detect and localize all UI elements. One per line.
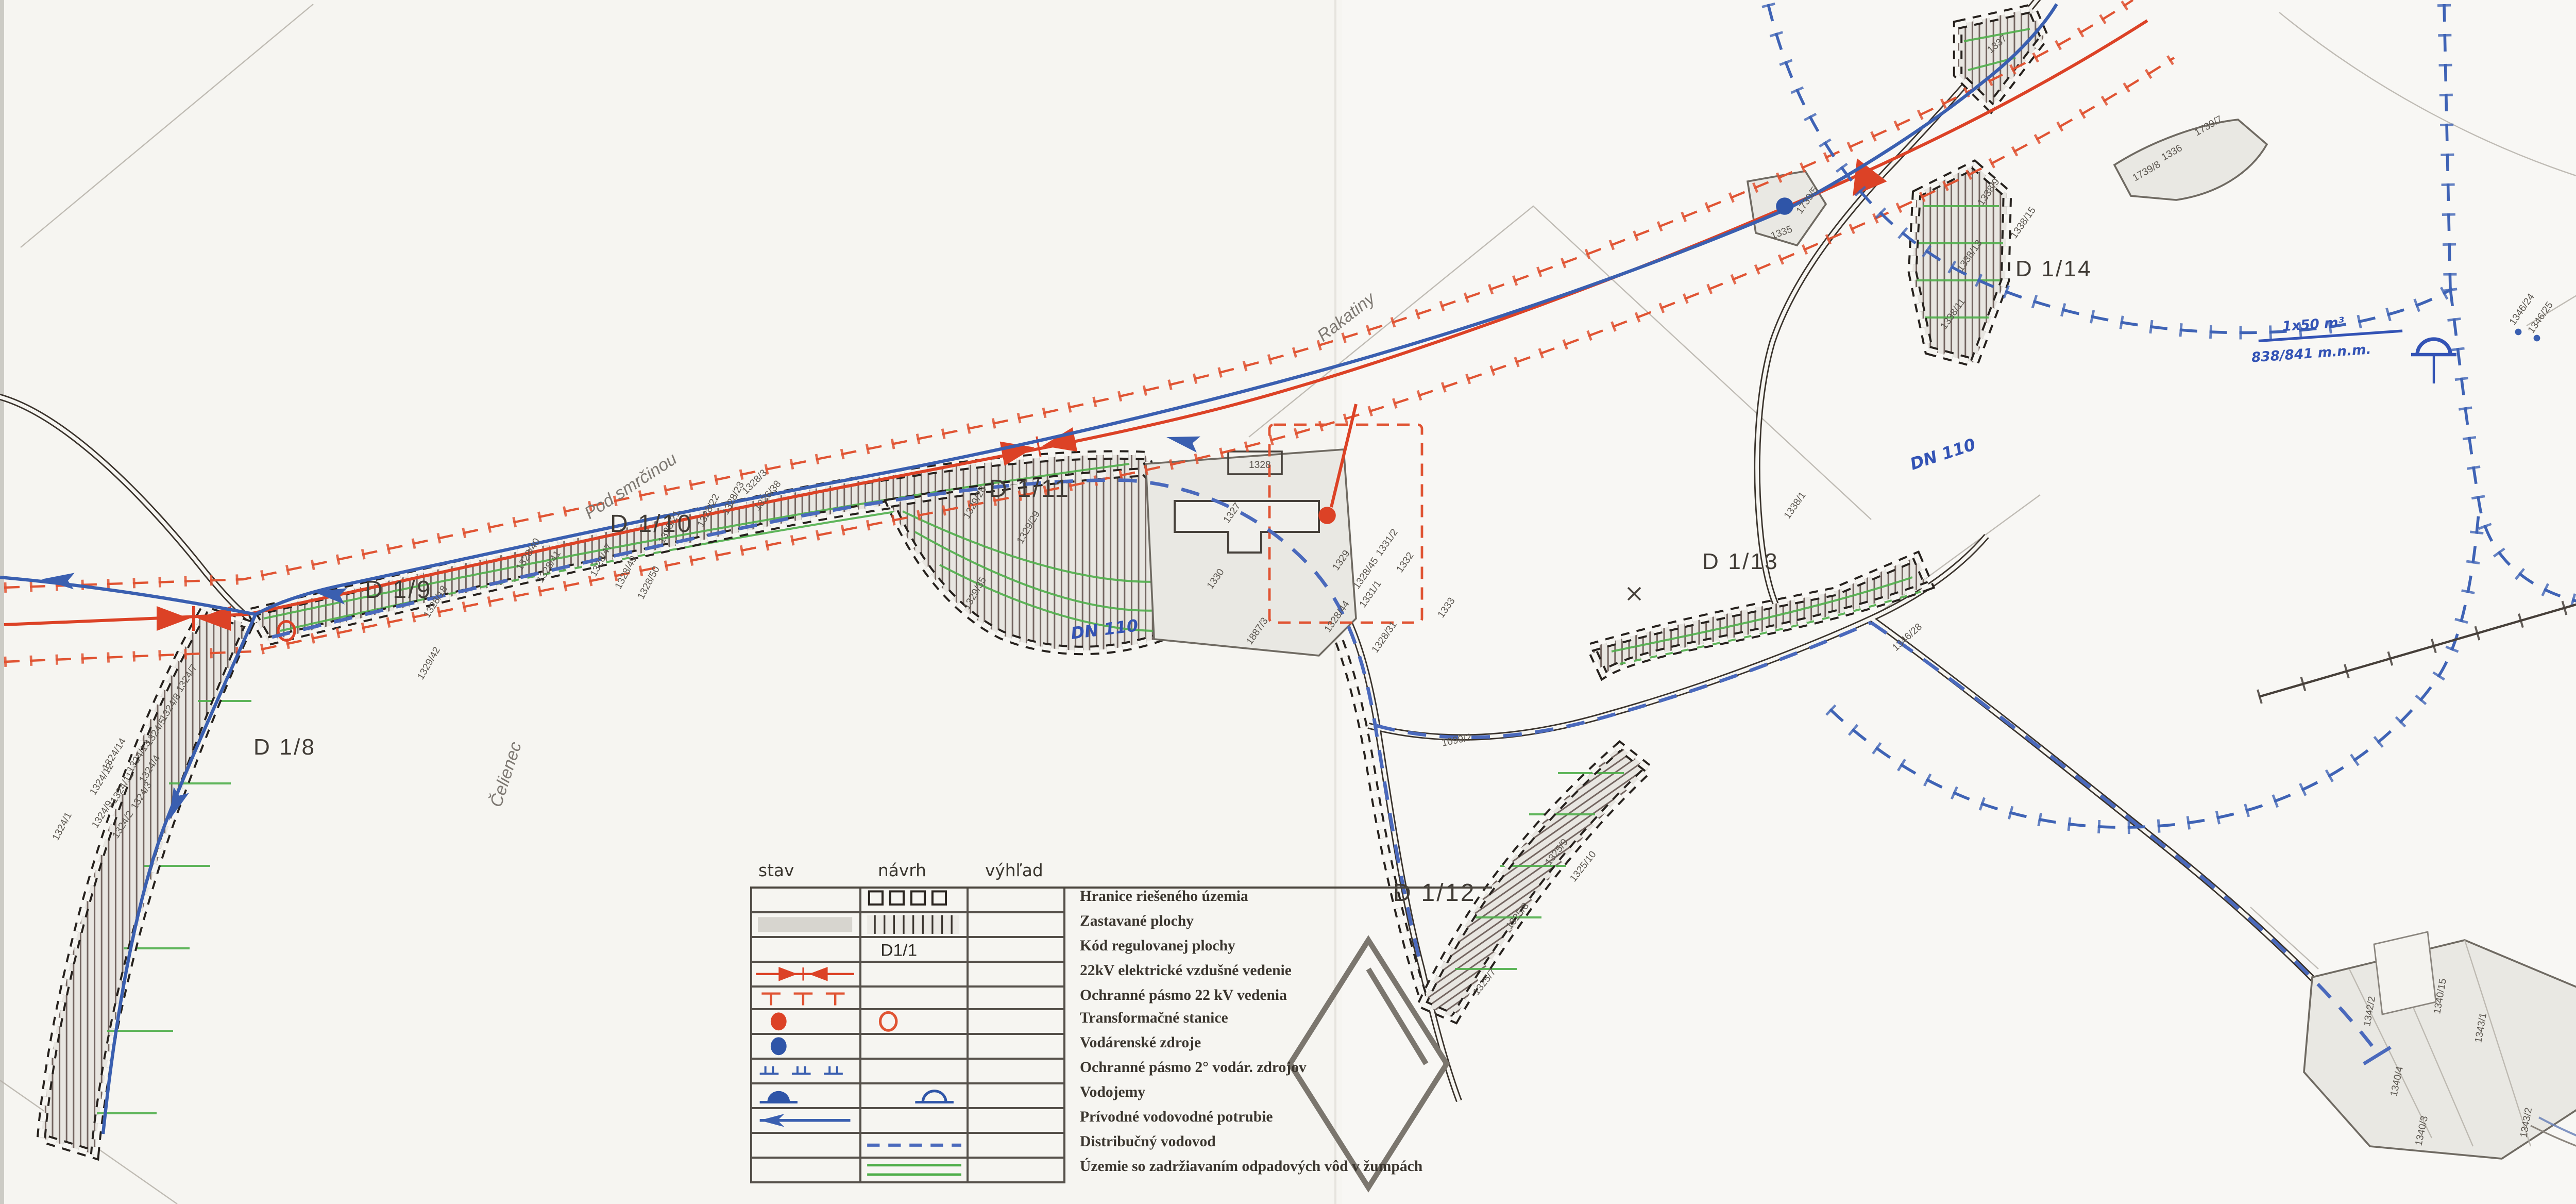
legend-row-op-vodar: Ochranné pásmo 2° vodár. zdrojov [750, 1060, 1492, 1085]
reservoir-note-line2: 838/841 m.n.m. [2251, 341, 2371, 365]
area-label: D 1/10 [610, 510, 693, 538]
legend-label: Ochranné pásmo 2° vodár. zdrojov [1080, 1058, 1307, 1077]
parcel-label: 1333 [1436, 596, 1458, 620]
water-source-dot [1776, 197, 1793, 215]
legend-label: Vodojemy [1080, 1083, 1145, 1101]
boundary-squares-icon [862, 889, 968, 911]
builtup-proposed-icon [862, 913, 968, 936]
transformer-station-existing [1318, 507, 1336, 524]
legend-header-vyhlad: výhľad [985, 860, 1043, 880]
parcel-label: 1328/50 [636, 564, 662, 601]
area-label: D 1/11 [989, 475, 1070, 503]
area-label: D 1/14 [2015, 256, 2092, 281]
parcel-label: 1329/42 [415, 645, 443, 682]
builtup-existing-icon [752, 913, 860, 936]
area-label: D 1/9 [365, 576, 432, 604]
scanned-plan-page: 1x50 m³ 838/841 m.n.m. RakatinyPod smrči… [0, 0, 2576, 1204]
legend-row-22kv: 22kV elektrické vzdušné vedenie [750, 962, 1492, 987]
legend-label: Kód regulovanej plochy [1080, 935, 1235, 954]
legend-label: Distribučný vodovod [1080, 1132, 1216, 1150]
legend-row-hranice: Hranice riešeného územia [750, 889, 1492, 913]
legend-row-vodojemy: Vodojemy [750, 1085, 1492, 1110]
pipe-label: DN 110 [1908, 434, 1978, 474]
powerline-zone-icon [752, 986, 860, 1009]
parcel-label: 1324/1 [50, 811, 74, 843]
supply-pipe-icon [752, 1109, 860, 1132]
transformer-existing-icon [752, 1011, 860, 1034]
parcel-label: 1331/2 [1374, 527, 1400, 558]
water-source-icon [752, 1035, 860, 1058]
legend-label: Zastavané plochy [1080, 911, 1194, 930]
scan-edge [0, 0, 4, 1204]
legend-row-zumpy: Územie so zadržiavaním odpadových vôd v … [750, 1158, 1492, 1183]
legend-row-trafo: Transformačné stanice [750, 1011, 1492, 1036]
legend-table: Hranice riešeného územia Zastavané ploch… [750, 887, 1492, 1183]
legend-label: Ochranné pásmo 22 kV vedenia [1080, 984, 1287, 1003]
parcel-label: 1328/31 [1370, 620, 1399, 655]
legend-label: Hranice riešeného územia [1080, 887, 1248, 905]
legend-row-distribucny: Distribučný vodovod [750, 1134, 1492, 1159]
reservoir-proposed-icon [862, 1085, 968, 1108]
cesspool-area-icon [862, 1158, 968, 1181]
water-zone-icon [752, 1060, 860, 1083]
area-label: D 1/13 [1702, 549, 1779, 574]
code-sample: D1/1 [881, 941, 918, 960]
legend-header-stav: stav [758, 860, 794, 880]
legend-label: Územie so zadržiavaním odpadových vôd v … [1080, 1156, 1422, 1175]
legend-row-vodarenske: Vodárenské zdroje [750, 1035, 1492, 1060]
small-blue-dot [2534, 335, 2540, 342]
transformer-proposed-icon [862, 1011, 968, 1034]
legend-label: 22kV elektrické vzdušné vedenie [1080, 960, 1292, 979]
powerline-icon [752, 962, 860, 985]
small-blue-dot [2515, 329, 2522, 336]
parcel-rect [2374, 932, 2436, 1014]
parcel-label: 1328 [1249, 460, 1271, 471]
reservoir-symbol [2411, 339, 2456, 383]
parcel-label: 1338/1 [1782, 490, 1808, 521]
survey-cross [1628, 588, 1640, 600]
legend-row-op22kv: Ochranné pásmo 22 kV vedenia [750, 986, 1492, 1011]
parcel-label: 1325/10 [1568, 849, 1598, 884]
reservoir-note-line1: 1x50 m³ [2282, 314, 2345, 335]
parcel-label: 1332 [1395, 550, 1416, 575]
legend-label: Prívodné vodovodné potrubie [1080, 1107, 1273, 1126]
reservoir-existing-icon [752, 1085, 860, 1108]
legend-label: Vodárenské zdroje [1080, 1033, 1201, 1052]
area-label: D 1/8 [253, 734, 316, 760]
legend-row-kod: D1/1 Kód regulovanej plochy [750, 938, 1492, 962]
legend-header: stav návrh výhľad [750, 860, 1492, 887]
legend-header-navrh: návrh [878, 860, 926, 880]
street-label: Čelienec [486, 739, 526, 809]
parcel-label: 1338/15 [2009, 205, 2038, 241]
legend-row-privodne: Prívodné vodovodné potrubie [750, 1109, 1492, 1134]
legend-row-zastavane: Zastavané plochy [750, 913, 1492, 938]
legend: stav návrh výhľad Hranice riešeného územ… [750, 860, 1492, 1183]
distribution-pipe-icon [862, 1134, 968, 1157]
legend-label: Transformačné stanice [1080, 1009, 1228, 1028]
